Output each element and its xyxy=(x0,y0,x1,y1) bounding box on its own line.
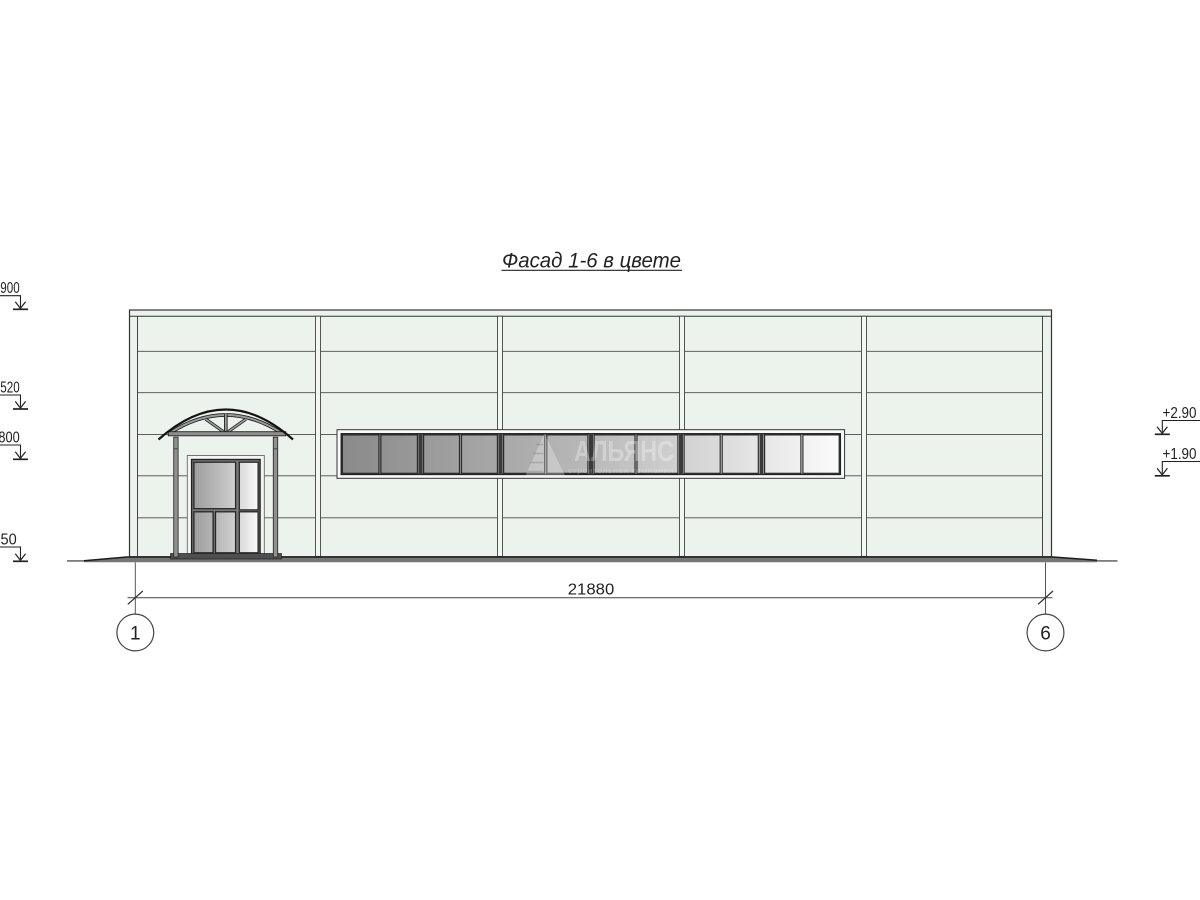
svg-text:АЛЬЯНС: АЛЬЯНС xyxy=(574,436,674,468)
svg-text:+1.90: +1.90 xyxy=(1163,446,1197,463)
svg-text:50: 50 xyxy=(1,532,17,549)
svg-text:1: 1 xyxy=(130,623,141,644)
svg-text:6: 6 xyxy=(1040,623,1051,644)
svg-text:Фасад 1-6 в цвете: Фасад 1-6 в цвете xyxy=(502,249,681,273)
svg-text:+2.90: +2.90 xyxy=(1163,405,1197,422)
svg-text:800: 800 xyxy=(0,430,20,447)
svg-text:строительная компания: строительная компания xyxy=(568,466,674,475)
svg-text:900: 900 xyxy=(0,280,19,297)
svg-text:520: 520 xyxy=(0,380,19,397)
svg-text:21880: 21880 xyxy=(568,581,615,598)
